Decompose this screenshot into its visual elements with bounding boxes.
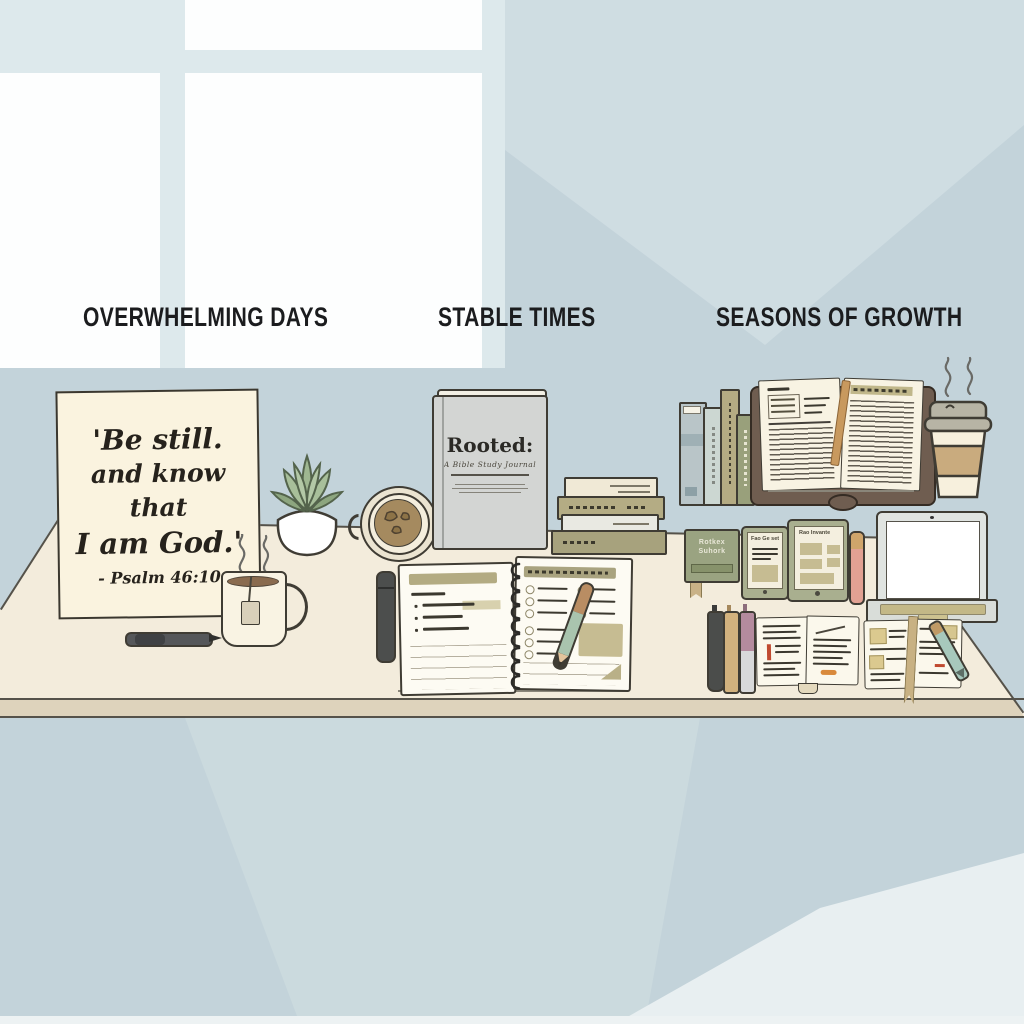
ruled-lines bbox=[410, 644, 507, 690]
desk-front-line-bottom bbox=[0, 716, 1024, 718]
journal-fine-print bbox=[455, 484, 525, 485]
bullet-dot bbox=[415, 629, 418, 632]
text-line bbox=[870, 673, 904, 675]
book-page-line bbox=[613, 523, 649, 525]
check-line bbox=[537, 611, 567, 614]
pink-pen-upright bbox=[849, 531, 865, 605]
text-line bbox=[919, 672, 949, 674]
sticky-note bbox=[870, 628, 887, 644]
bible-spine-nub bbox=[828, 494, 858, 511]
desk-front-line-top bbox=[0, 698, 1024, 700]
journal-spine bbox=[442, 397, 444, 548]
ruled-lines bbox=[523, 662, 619, 686]
spine-text-vertical bbox=[744, 430, 747, 486]
mini-olive-book: Rotkex Suhork bbox=[684, 529, 740, 583]
spine-label bbox=[685, 487, 697, 496]
mini-book-line-2: Suhork bbox=[686, 548, 738, 555]
check-line bbox=[589, 612, 615, 614]
text-line bbox=[763, 662, 801, 664]
screen-block bbox=[827, 545, 840, 554]
book-pages-top bbox=[683, 406, 701, 414]
pen-cap bbox=[851, 533, 863, 549]
floor-strip bbox=[0, 1016, 1024, 1024]
screen-block bbox=[827, 558, 840, 567]
spine-text bbox=[627, 506, 647, 509]
plant-pot bbox=[278, 511, 336, 555]
book-a-bottom-tab bbox=[798, 683, 818, 694]
text-line bbox=[813, 651, 851, 653]
book-page-line bbox=[610, 485, 650, 487]
journal-fine-print bbox=[452, 488, 528, 489]
page-text bbox=[769, 427, 835, 483]
laptop-camera bbox=[930, 516, 934, 519]
cup-lid-lip bbox=[925, 418, 991, 431]
marker-cap-line bbox=[378, 587, 394, 589]
screen-line bbox=[752, 548, 778, 550]
quote-line-2: and know that bbox=[58, 456, 258, 526]
sticky-note bbox=[869, 655, 884, 669]
check-line bbox=[589, 600, 615, 602]
tablet-large-header: Rao Invante bbox=[799, 530, 843, 536]
planner-header-band bbox=[524, 566, 616, 579]
text-line bbox=[870, 648, 906, 650]
highlight-band bbox=[850, 385, 912, 396]
text-line bbox=[763, 625, 801, 627]
text-line bbox=[889, 630, 907, 632]
mug-steam bbox=[226, 534, 286, 574]
journal-rule bbox=[451, 474, 529, 476]
screen-block bbox=[800, 543, 822, 555]
note-line bbox=[804, 404, 826, 407]
page-heading bbox=[767, 387, 789, 391]
journal-subtitle: A Bible Study Journal bbox=[434, 460, 546, 469]
bible-page-edges bbox=[768, 490, 914, 492]
spine-text bbox=[563, 541, 597, 544]
teal-pen-cap bbox=[930, 621, 944, 635]
screen-block bbox=[800, 573, 834, 584]
spine-text-vertical bbox=[712, 427, 715, 487]
handwriting-line bbox=[423, 615, 463, 618]
text-line bbox=[813, 663, 849, 665]
screen-line bbox=[752, 558, 771, 560]
bullet-dot bbox=[414, 605, 417, 608]
mini-book-label bbox=[691, 564, 733, 573]
screen-block bbox=[800, 559, 822, 569]
note-line bbox=[804, 411, 822, 414]
stacked-book-bottom bbox=[551, 530, 667, 555]
text-line bbox=[813, 639, 851, 641]
plant-leaves bbox=[272, 456, 342, 511]
tablet-small-header: Fao Ge set bbox=[751, 536, 782, 542]
red-mark bbox=[935, 664, 945, 667]
section-header-stable-times: STABLE TIMES bbox=[438, 302, 596, 333]
coffee-cup bbox=[918, 356, 998, 502]
pen-upper bbox=[741, 613, 754, 651]
handwriting-line bbox=[423, 627, 469, 630]
desk-front-edge bbox=[0, 700, 1024, 717]
home-button bbox=[763, 590, 767, 594]
mini-book-line-1: Rotkex bbox=[686, 539, 738, 546]
planner-header-highlight bbox=[409, 572, 497, 585]
home-button bbox=[815, 591, 820, 596]
handwriting-word bbox=[411, 592, 445, 596]
table-line bbox=[771, 404, 795, 407]
quote-line-1: 'Be still. bbox=[58, 421, 257, 459]
bullet-dot bbox=[415, 617, 418, 620]
text-line bbox=[763, 668, 795, 670]
planner-note-block bbox=[578, 623, 623, 657]
page-table bbox=[768, 394, 801, 419]
screen-block bbox=[752, 565, 778, 582]
text-line bbox=[870, 679, 900, 681]
illustration-scene: OVERWHELMING DAYS STABLE TIMES SEASONS O… bbox=[0, 0, 1024, 1024]
seed-doodles bbox=[379, 503, 417, 541]
journal-title: Rooted: bbox=[434, 433, 546, 457]
table-line bbox=[771, 398, 795, 401]
pencil-lead bbox=[557, 661, 563, 668]
spine-band bbox=[681, 434, 705, 446]
spiral-binding bbox=[499, 560, 527, 692]
table-line bbox=[771, 410, 795, 413]
tablet-large: Rao Invante bbox=[787, 519, 849, 602]
tablet-screen: Rao Invante bbox=[794, 526, 844, 590]
spine-text bbox=[569, 506, 617, 509]
book-page-line bbox=[618, 491, 650, 493]
teal-pen-tip bbox=[955, 668, 968, 681]
window-pane bbox=[185, 0, 482, 50]
section-header-overwhelming-days: OVERWHELMING DAYS bbox=[83, 302, 328, 333]
text-line bbox=[889, 636, 905, 638]
header-text bbox=[528, 570, 608, 574]
highlight-text bbox=[854, 388, 908, 393]
desk-pen-horizontal bbox=[125, 632, 213, 647]
text-line bbox=[775, 645, 801, 647]
laptop-screen-frame bbox=[876, 511, 988, 607]
tablet-small: Fao Ge set bbox=[741, 526, 789, 600]
bible-right-page bbox=[840, 378, 924, 492]
open-book-a-right bbox=[805, 616, 859, 686]
pen-tan bbox=[723, 611, 740, 694]
divider bbox=[769, 421, 831, 425]
note-line bbox=[804, 397, 830, 400]
text-line bbox=[886, 658, 906, 660]
pen-stroke bbox=[816, 626, 846, 635]
pen-grip bbox=[135, 634, 165, 645]
pen-pink-silver bbox=[739, 611, 756, 694]
bible-left-page bbox=[758, 378, 844, 492]
tablet-screen: Fao Ge set bbox=[747, 532, 783, 589]
page-text bbox=[847, 400, 914, 484]
text-line bbox=[763, 637, 801, 639]
text-line bbox=[813, 657, 843, 659]
section-header-seasons-of-growth: SEASONS OF GROWTH bbox=[716, 302, 962, 333]
teabag-tag bbox=[241, 601, 260, 625]
open-book-a-left bbox=[755, 617, 809, 687]
check-line bbox=[538, 587, 568, 590]
spine-text-vertical bbox=[729, 403, 732, 487]
rooted-journal: Rooted: A Bible Study Journal bbox=[432, 395, 548, 550]
black-marker bbox=[376, 571, 396, 663]
tea-surface bbox=[227, 576, 279, 587]
laptop-screen bbox=[886, 521, 980, 599]
coffee-steam bbox=[946, 358, 972, 396]
orange-highlight bbox=[821, 670, 837, 675]
text-line bbox=[775, 651, 799, 653]
text-line bbox=[763, 674, 799, 676]
text-line bbox=[763, 631, 797, 633]
check-line bbox=[537, 599, 567, 602]
cup-sleeve bbox=[933, 446, 983, 476]
text-line bbox=[813, 645, 847, 647]
red-highlight bbox=[767, 644, 771, 660]
screen-line bbox=[752, 553, 778, 555]
journal-fine-print bbox=[459, 492, 521, 493]
